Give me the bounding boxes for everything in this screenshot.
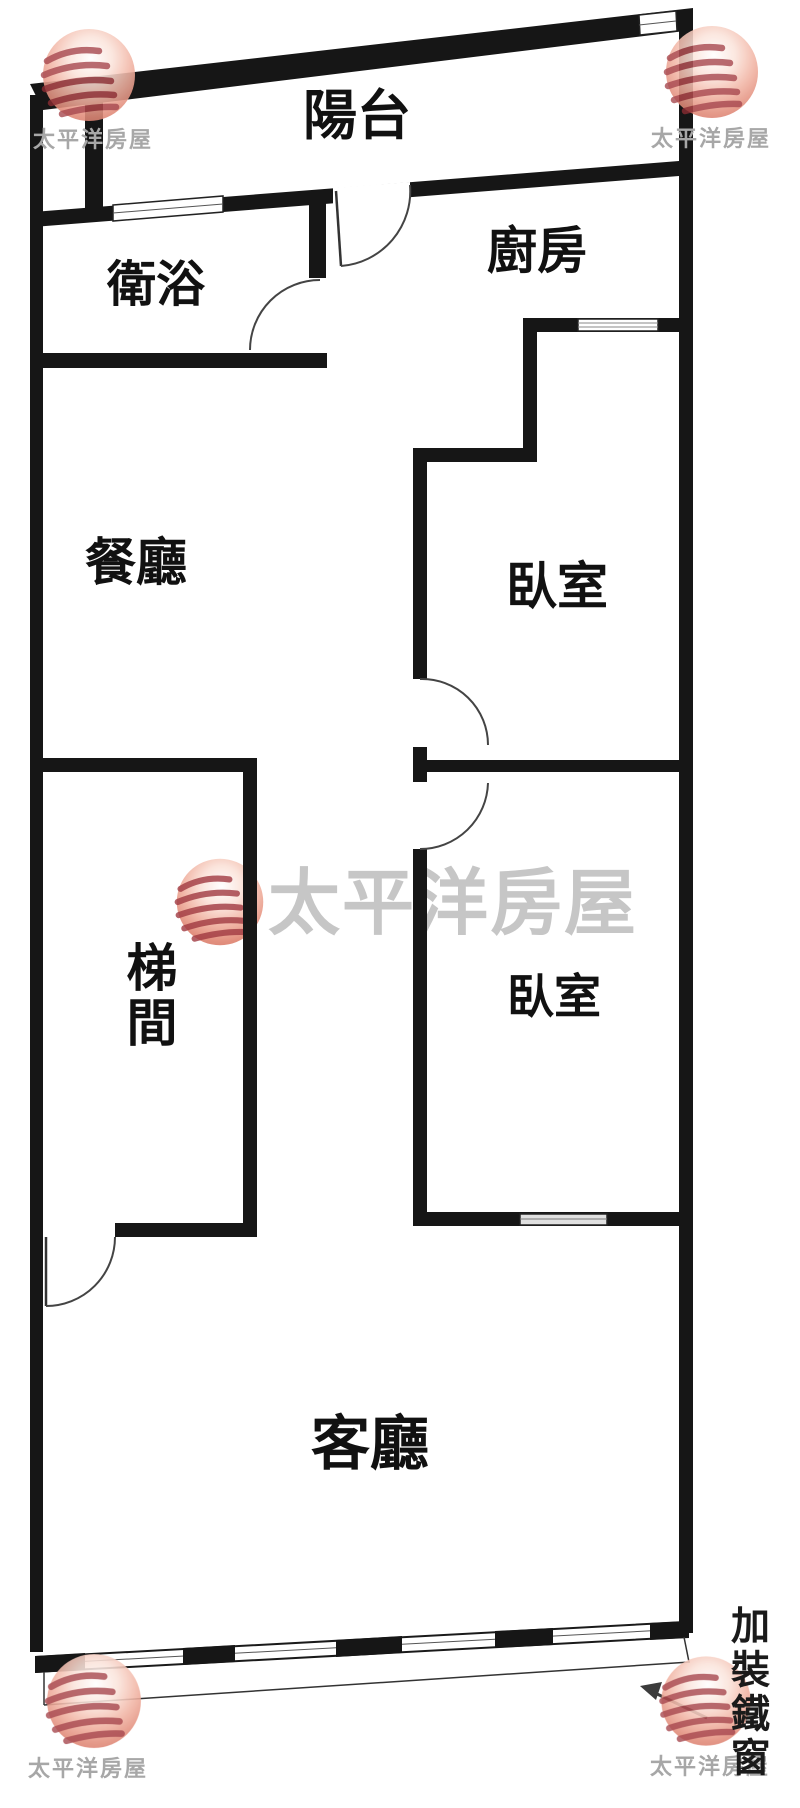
annotation-iron-window: 加裝鐵窗: [726, 1605, 767, 1781]
brand-swirl-icon: [47, 1654, 141, 1748]
wall-bedroom-divider: [413, 760, 683, 772]
room-label-bathroom: 衛浴: [107, 260, 205, 311]
wall-bathroom-right: [309, 196, 326, 278]
door-arc-bedroom-lower: [420, 783, 488, 849]
door-gap-balcony: [333, 182, 410, 204]
door-arc-bathroom: [250, 280, 320, 350]
wall-stairwell-top: [37, 758, 257, 772]
window-kitchen: [578, 319, 658, 331]
brand-swirl-icon: [43, 29, 135, 121]
room-label-balcony: 陽台: [303, 88, 411, 144]
wall-stairwell-right: [243, 758, 257, 1237]
wall-left-outer: [30, 95, 43, 1652]
wall-central-lower: [413, 849, 427, 1226]
watermark-brand-text-top-left: 太平洋房屋: [33, 127, 153, 152]
wall-kitchen-left: [523, 318, 537, 462]
room-label-kitchen: 廚房: [487, 225, 587, 277]
room-label-bedroom-upper: 臥室: [506, 560, 608, 613]
arrow-head-icon: [640, 1682, 662, 1700]
wall-right-outer: [679, 10, 693, 1633]
wall-stairwell-bottom: [115, 1223, 257, 1237]
wall-bathroom-bottom: [35, 353, 327, 368]
wall-bedroom-upper-step: [413, 448, 537, 462]
brand-swirl-icon: [666, 26, 758, 118]
floorplan-canvas: 太平洋房屋: [0, 0, 800, 1808]
wall-central-upper: [413, 448, 427, 679]
room-label-bedroom-lower: 臥室: [507, 973, 601, 1022]
room-label-living: 客廳: [311, 1414, 429, 1475]
door-arc-stairwell: [46, 1237, 115, 1306]
watermark-brand-text-center: 太平洋房屋: [268, 864, 638, 944]
walls: [30, 8, 693, 1652]
room-label-dining: 餐廳: [85, 536, 187, 589]
room-label-stairwell: 梯間: [121, 941, 174, 1051]
watermark-brand-text-top-right: 太平洋房屋: [651, 126, 771, 151]
door-arc-bedroom-upper: [420, 679, 488, 745]
watermark-brand-text-bottom-left: 太平洋房屋: [28, 1756, 148, 1781]
